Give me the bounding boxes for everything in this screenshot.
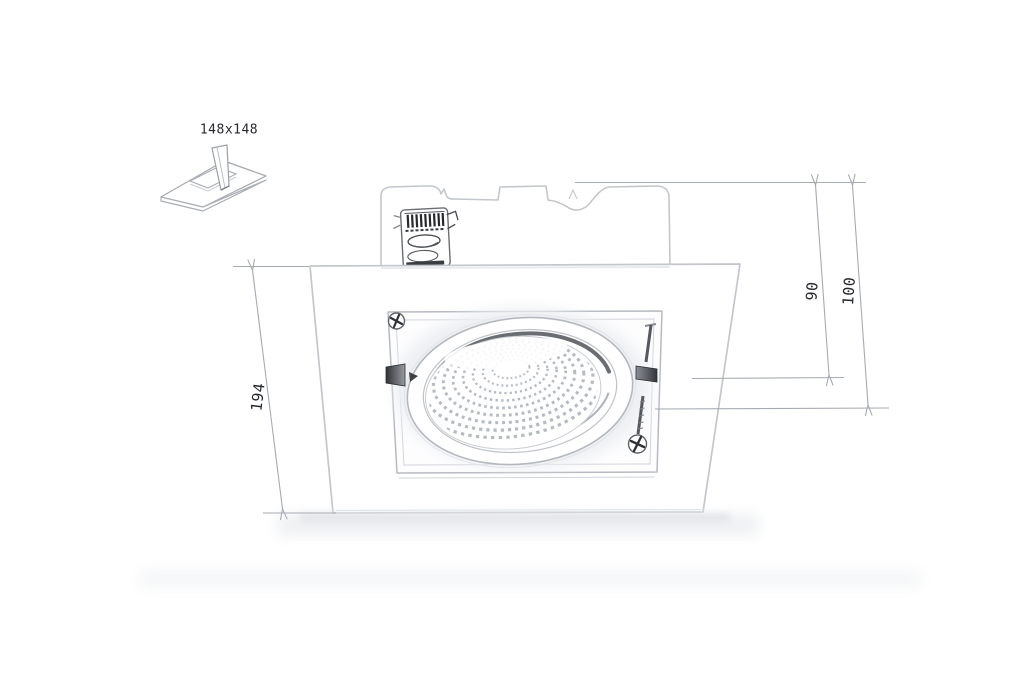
mounting-plate xyxy=(161,161,266,211)
screw-top-left xyxy=(389,313,405,329)
depth-100-label: 100 xyxy=(839,276,859,306)
floor-shadow xyxy=(140,571,920,587)
height-label: 194 xyxy=(247,382,268,413)
drop-shadow xyxy=(278,514,758,535)
cutout-icon xyxy=(161,145,266,211)
screw-bottom-right xyxy=(629,435,647,453)
technical-drawing-canvas: 148x148 194 90 100 xyxy=(0,0,1024,683)
pivot-right xyxy=(636,366,657,382)
cutout-size-label: 148x148 xyxy=(200,123,258,138)
downlight-dimension-drawing xyxy=(0,0,1024,683)
depth-90-label: 90 xyxy=(802,281,821,301)
